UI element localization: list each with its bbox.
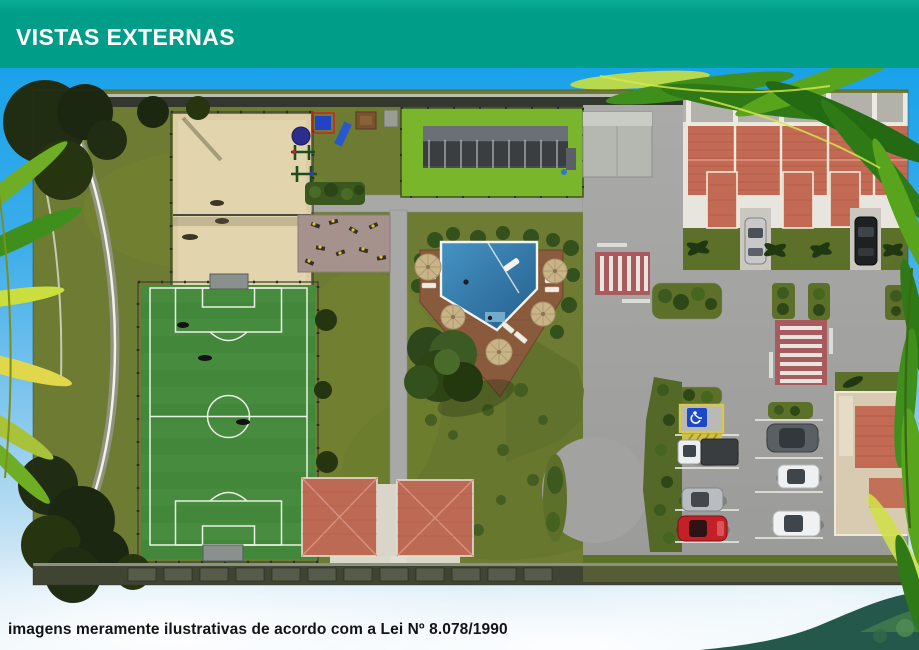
sandbox-inner	[360, 116, 372, 125]
car-silver-driveway	[745, 218, 766, 264]
hills	[700, 592, 919, 650]
net-shadow	[173, 217, 311, 226]
pickup-white	[677, 439, 739, 466]
trampoline	[292, 127, 310, 145]
player	[182, 234, 198, 240]
gym-detail	[292, 150, 296, 154]
player	[177, 322, 189, 328]
goal-bottom	[203, 545, 243, 561]
site-plan-illustration	[0, 68, 919, 650]
beach-volleyball-court	[171, 112, 313, 292]
sand-light	[178, 120, 306, 285]
bush	[547, 466, 563, 494]
site-plan	[3, 80, 908, 603]
house-side-wall	[839, 396, 853, 456]
outdoor-gym-area	[298, 215, 390, 272]
bleachers-roof	[423, 126, 568, 141]
player	[210, 200, 224, 206]
car-silver	[679, 488, 727, 511]
player	[236, 419, 250, 425]
slide: VISTAS EXTERNAS	[0, 0, 919, 650]
goal-top	[210, 274, 248, 289]
covered-bleachers-lawn	[401, 108, 583, 197]
legal-disclaimer: imagens meramente ilustrativas de acordo…	[8, 621, 508, 639]
car-red	[676, 516, 730, 541]
bleachers-end	[566, 148, 576, 170]
play-cube	[315, 116, 331, 130]
clubhouse-roof-right	[397, 480, 473, 556]
header-bar: VISTAS EXTERNAS	[0, 0, 919, 68]
hedge-island	[305, 182, 365, 205]
umbrella	[486, 339, 512, 365]
clubhouse-roof-left	[302, 478, 377, 556]
crosswalk-east	[769, 320, 833, 385]
swimmer	[463, 279, 468, 284]
clubhouse	[302, 478, 473, 563]
car-white-2	[772, 511, 824, 536]
crosswalk-north	[595, 243, 650, 303]
umbrella	[415, 254, 441, 280]
utility-shed	[583, 112, 652, 177]
pool-steps	[485, 312, 505, 322]
player	[215, 218, 229, 224]
shed-small	[384, 110, 398, 127]
umbrella	[531, 302, 555, 326]
player	[198, 355, 212, 361]
gym-detail	[310, 172, 314, 176]
bush	[546, 512, 560, 532]
suv-gray	[766, 424, 820, 452]
umbrella	[543, 259, 567, 283]
soccer-field	[138, 274, 318, 562]
car-white-1	[776, 465, 822, 488]
car-black-driveway	[855, 217, 877, 265]
accessible-sign	[687, 408, 707, 427]
porch-roofs	[707, 172, 860, 228]
umbrella	[441, 305, 465, 329]
equipment-dot	[561, 169, 567, 175]
clubhouse-walkway	[377, 484, 397, 556]
page-title: VISTAS EXTERNAS	[0, 18, 235, 51]
swimmer	[488, 316, 492, 320]
